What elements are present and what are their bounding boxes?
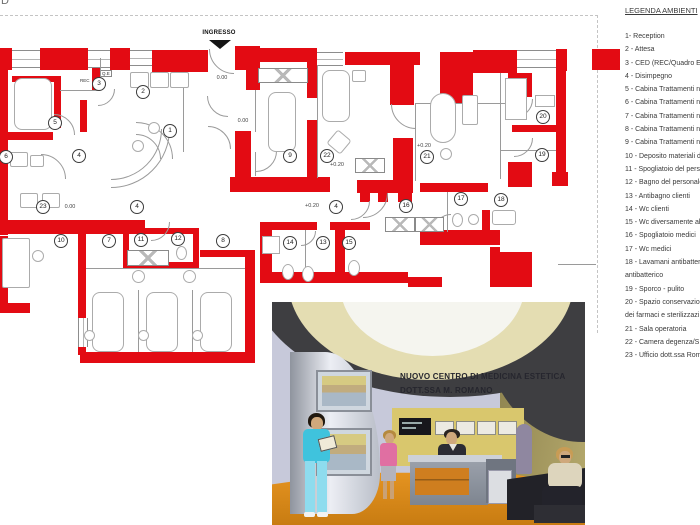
wall-segment (93, 70, 98, 75)
room-number-circle: 8 (216, 234, 230, 248)
wall-segment (0, 48, 12, 70)
legend-item: dei farmaci e sterilizzazi (625, 309, 700, 322)
furniture (492, 210, 516, 225)
wall-segment (230, 177, 330, 192)
room-number-circle: 13 (316, 236, 330, 250)
room-number-circle: 2 (136, 85, 150, 99)
crossed-closet (415, 217, 444, 232)
room-number-circle: 4 (72, 149, 86, 163)
reception-sign-line2: DOTT.SSA M. ROMANO (400, 386, 575, 395)
furniture (348, 260, 360, 276)
level-marker: +0.20 (305, 203, 319, 209)
wall-segment (80, 100, 87, 132)
furniture (468, 214, 479, 225)
partition-line (138, 290, 139, 352)
room-number-circle: 18 (494, 193, 508, 207)
legend-item: 16 - Spogliatoio medici (625, 229, 700, 242)
wall-segment (473, 50, 517, 73)
legend-item: 3 - CED (REC/Quadro E (625, 57, 700, 70)
wall-segment (420, 183, 488, 192)
level-marker: +0.20 (330, 162, 344, 168)
partition-line (255, 152, 256, 176)
legend-item: 12 - Bagno del personale (625, 176, 700, 189)
display-niche (316, 370, 372, 412)
furniture (440, 148, 452, 160)
standing-figure-silhouette (516, 424, 532, 474)
legend: LEGENDA AMBIENTI 1- Reception2 - Attesa3… (625, 6, 700, 362)
furniture (32, 250, 44, 262)
room-number-circle: 21 (420, 150, 434, 164)
crossed-closet (385, 217, 415, 232)
reception-sign-line1: NUOVO CENTRO DI MEDICINA ESTETICA (400, 372, 575, 381)
furniture (30, 155, 44, 167)
furniture (132, 140, 144, 152)
room-number-circle: 5 (48, 116, 62, 130)
furniture (146, 292, 178, 352)
rec-label: REC (80, 78, 90, 83)
room-number-circle: 23 (36, 200, 50, 214)
legend-item: antibatterico (625, 269, 700, 282)
furniture (262, 236, 280, 254)
furniture (505, 78, 527, 120)
crossed-closet (355, 158, 385, 173)
wall-segment (80, 352, 255, 363)
wall-segment (110, 48, 130, 70)
furniture (132, 270, 145, 283)
partition-line (86, 268, 245, 269)
legend-title: LEGENDA AMBIENTI (625, 6, 700, 15)
room-number-circle: 4 (130, 200, 144, 214)
entrance-arrow-icon (209, 40, 231, 49)
legend-item: 14 - Wc clienti (625, 203, 700, 216)
wall-segment (152, 50, 208, 72)
furniture (150, 72, 169, 88)
room-number-circle: 20 (536, 110, 550, 124)
door-swing-arc (207, 75, 249, 117)
interior-render: NUOVO CENTRO DI MEDICINA ESTETICA DOTT.S… (272, 302, 585, 525)
legend-item: 13 - Antibagno clienti (625, 190, 700, 203)
wall-segment (552, 172, 568, 186)
drawing-sheet: { "page": { "corner_char": "D" }, "plan"… (0, 0, 700, 525)
legend-item: 23 - Ufficio dott.ssa Rom (625, 349, 700, 362)
room-number-circle: 14 (283, 236, 297, 250)
legend-item: 19 - Sporco - pulito (625, 283, 700, 296)
sunglasses-icon (561, 455, 570, 458)
qe-label: Q.E (100, 70, 112, 77)
furniture (282, 264, 294, 280)
wall-segment (78, 232, 86, 320)
level-marker: 0.00 (65, 204, 76, 210)
furniture (462, 95, 478, 125)
room-number-circle: 17 (454, 192, 468, 206)
window (12, 50, 40, 68)
menu-board (399, 418, 431, 435)
furniture (170, 72, 189, 88)
room-number-circle: 9 (283, 149, 297, 163)
wall-segment (307, 120, 317, 177)
furniture (92, 292, 124, 352)
furniture (183, 270, 196, 283)
partition-line (558, 264, 596, 265)
wall-segment (40, 48, 88, 70)
wall-segment (357, 180, 413, 193)
room-number-circle: 3 (92, 77, 106, 91)
partition-line (500, 73, 501, 179)
wall-segment (307, 48, 317, 98)
wall-segment (260, 48, 307, 62)
wall-segment (390, 60, 414, 105)
room-number-circle: 4 (329, 200, 343, 214)
reception-desk-panel (415, 468, 469, 495)
furniture (302, 266, 314, 282)
legend-item: 6 - Cabina Trattamenti n (625, 96, 700, 109)
furniture (322, 70, 350, 122)
legend-item: 17 - Wc medici (625, 243, 700, 256)
level-marker: 0.00 (238, 118, 249, 124)
partition-line (317, 65, 318, 178)
room-number-circle: 15 (342, 236, 356, 250)
crossed-closet (127, 250, 169, 266)
furniture (2, 238, 30, 288)
legend-item: 1- Reception (625, 30, 700, 43)
wall-segment (495, 252, 532, 287)
room-number-circle: 7 (102, 234, 116, 248)
furniture (352, 70, 366, 82)
legend-item: 15 - Wc diversamente ab (625, 216, 700, 229)
wall-segment (335, 230, 345, 272)
furniture (430, 93, 456, 143)
wall-segment (235, 131, 251, 178)
furniture (148, 122, 160, 134)
legend-item: 10 - Deposito materiali d (625, 150, 700, 163)
level-marker: +0.20 (417, 143, 431, 149)
room-number-circle: 16 (399, 199, 413, 213)
chair (534, 505, 585, 523)
wall-segment (482, 210, 490, 238)
room-number-circle: 19 (535, 148, 549, 162)
legend-item: 20 - Spazio conservazio (625, 296, 700, 309)
legend-item: 11 - Spogliatoio del pers (625, 163, 700, 176)
furniture (176, 246, 187, 260)
picture-frame (477, 421, 496, 435)
partition-line (60, 90, 100, 91)
level-marker: 0.00 (217, 75, 228, 81)
wall-segment (245, 252, 255, 363)
room-number-circle: 12 (171, 232, 185, 246)
window (130, 50, 152, 66)
furniture (192, 330, 203, 341)
wall-segment (408, 277, 442, 287)
furniture (535, 95, 555, 107)
window (317, 52, 343, 66)
partition-line (415, 103, 505, 104)
picture-frame (498, 421, 517, 435)
entrance-label: INGRESSO (196, 30, 242, 36)
room-number-circle: 1 (163, 124, 177, 138)
furniture (452, 213, 463, 227)
wall-segment (0, 303, 30, 313)
wall-segment (556, 60, 566, 180)
room-number-circle: 10 (54, 234, 68, 248)
furniture (200, 292, 232, 352)
furniture (268, 92, 296, 152)
wall-segment (5, 132, 53, 140)
legend-item: 18 - Lavamani antibatter (625, 256, 700, 269)
wall-segment (508, 162, 532, 187)
crossed-closet (258, 68, 308, 83)
furniture (14, 78, 52, 130)
wall-segment (512, 125, 558, 132)
legend-item: 7 - Cabina Trattamenti n (625, 110, 700, 123)
wall-segment (330, 222, 370, 230)
window (88, 50, 110, 68)
furniture (84, 330, 95, 341)
wall-segment (592, 49, 620, 70)
legend-item-list: 1- Reception2 - Attesa3 - CED (REC/Quadr… (625, 30, 700, 362)
partition-line (183, 88, 184, 152)
partition-line (192, 290, 193, 352)
legend-item: 5 - Cabina Trattamenti n (625, 83, 700, 96)
room-number-circle: 11 (134, 233, 148, 247)
legend-item: 22 - Camera degenza/S (625, 336, 700, 349)
room-number-circle: 22 (320, 149, 334, 163)
legend-item: 2 - Attesa (625, 43, 700, 56)
legend-item: 21 - Sala operatoria (625, 323, 700, 336)
legend-item: 8 - Cabina Trattamenti n (625, 123, 700, 136)
furniture (138, 330, 149, 341)
partition-line (255, 90, 256, 132)
door-swing-arc (185, 126, 231, 172)
legend-item: 4 - Disimpegno (625, 70, 700, 83)
legend-item: 9 - Cabina Trattamenti n (625, 136, 700, 149)
window (517, 50, 556, 68)
